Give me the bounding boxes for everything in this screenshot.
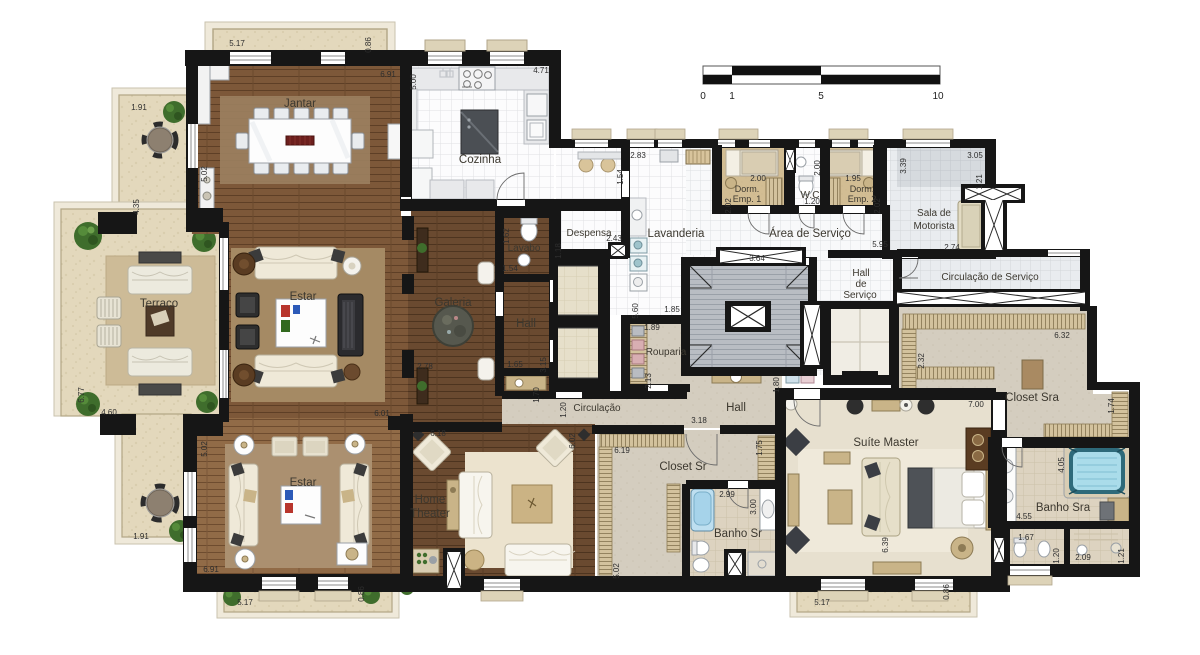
svg-text:6.32: 6.32 [1054, 331, 1070, 340]
svg-text:Hall: Hall [726, 402, 746, 414]
svg-text:5.60: 5.60 [631, 303, 640, 319]
svg-text:2.13: 2.13 [644, 373, 653, 389]
svg-text:6.19: 6.19 [614, 446, 630, 455]
svg-text:Home: Home [415, 494, 446, 506]
svg-text:3.05: 3.05 [967, 151, 983, 160]
svg-text:5.02: 5.02 [200, 441, 209, 457]
svg-text:Rouparia: Rouparia [646, 347, 687, 358]
svg-text:Suíte Master: Suíte Master [853, 437, 918, 449]
svg-text:Closet Sra: Closet Sra [1005, 392, 1059, 404]
svg-text:Motorista: Motorista [913, 221, 955, 232]
svg-text:2.43: 2.43 [606, 234, 622, 243]
svg-text:Emp. 1: Emp. 1 [733, 194, 762, 204]
svg-text:0: 0 [700, 91, 706, 102]
svg-text:1.95: 1.95 [845, 174, 861, 183]
svg-text:1.75: 1.75 [755, 440, 764, 456]
svg-text:1.20: 1.20 [559, 402, 568, 418]
svg-text:6.18: 6.18 [430, 429, 446, 438]
svg-text:Banho Sr: Banho Sr [714, 528, 762, 540]
svg-text:Theater: Theater [410, 508, 450, 520]
svg-text:Jantar: Jantar [284, 98, 316, 110]
svg-text:Estar: Estar [290, 477, 317, 489]
svg-text:2.00: 2.00 [750, 174, 766, 183]
svg-text:2.00: 2.00 [813, 160, 822, 176]
svg-text:5.17: 5.17 [237, 598, 253, 607]
svg-text:2.74: 2.74 [944, 243, 960, 252]
svg-text:1.54: 1.54 [502, 264, 518, 273]
svg-text:5.95: 5.95 [872, 240, 888, 249]
svg-text:1.20: 1.20 [804, 197, 820, 206]
svg-text:Banho Sra: Banho Sra [1036, 502, 1091, 514]
svg-text:Closet Sr: Closet Sr [659, 461, 706, 473]
svg-text:2.83: 2.83 [630, 151, 646, 160]
svg-text:1.91: 1.91 [133, 532, 149, 541]
svg-text:4.55: 4.55 [1016, 512, 1032, 521]
svg-text:1.67: 1.67 [1018, 533, 1034, 542]
svg-text:2.02: 2.02 [873, 198, 882, 214]
svg-text:Serviço: Serviço [843, 290, 877, 301]
svg-text:10: 10 [932, 91, 944, 102]
svg-text:1.21: 1.21 [975, 174, 984, 190]
svg-text:6.02: 6.02 [568, 433, 577, 449]
svg-text:5.00: 5.00 [409, 74, 418, 90]
svg-text:1.70: 1.70 [532, 387, 541, 403]
svg-text:0.86: 0.86 [364, 37, 373, 53]
svg-text:5.02: 5.02 [200, 166, 209, 182]
svg-text:Circulação de Serviço: Circulação de Serviço [941, 272, 1039, 283]
svg-text:6.77: 6.77 [77, 387, 86, 403]
svg-text:1.65: 1.65 [507, 360, 523, 369]
svg-text:2.99: 2.99 [719, 490, 735, 499]
svg-text:Sala de: Sala de [917, 208, 951, 219]
svg-text:1.80: 1.80 [772, 377, 781, 393]
svg-text:0.86: 0.86 [942, 584, 951, 600]
svg-text:3.15: 3.15 [539, 357, 548, 373]
svg-text:1.74: 1.74 [1107, 398, 1116, 414]
svg-text:1.18: 1.18 [554, 243, 563, 259]
svg-text:1.20: 1.20 [1052, 548, 1061, 564]
svg-text:5.17: 5.17 [229, 39, 245, 48]
svg-text:7.00: 7.00 [968, 400, 984, 409]
svg-text:Dorm.: Dorm. [735, 184, 760, 194]
svg-text:2.32: 2.32 [917, 353, 926, 369]
svg-text:6.91: 6.91 [203, 565, 219, 574]
svg-text:5.02: 5.02 [612, 563, 621, 579]
svg-text:1.85: 1.85 [664, 305, 680, 314]
svg-text:Circulação: Circulação [573, 403, 621, 414]
svg-text:2.78: 2.78 [417, 362, 433, 371]
svg-text:Hall: Hall [852, 268, 869, 279]
svg-text:1.89: 1.89 [644, 323, 660, 332]
svg-text:3.18: 3.18 [691, 416, 707, 425]
svg-text:Área de Serviço: Área de Serviço [769, 227, 851, 240]
svg-text:1.21: 1.21 [1117, 548, 1126, 564]
svg-text:4.60: 4.60 [101, 408, 117, 417]
svg-text:5.17: 5.17 [814, 598, 830, 607]
svg-text:3.39: 3.39 [899, 158, 908, 174]
svg-text:4.35: 4.35 [132, 199, 141, 215]
svg-text:6.01: 6.01 [374, 409, 390, 418]
svg-text:Lavanderia: Lavanderia [648, 228, 706, 240]
svg-text:Lavabo: Lavabo [508, 243, 541, 254]
svg-text:Estar: Estar [290, 291, 317, 303]
svg-text:5: 5 [818, 91, 824, 102]
svg-text:4.71: 4.71 [533, 66, 549, 75]
svg-text:de: de [855, 279, 867, 290]
svg-text:1.91: 1.91 [131, 103, 147, 112]
svg-text:1.62: 1.62 [502, 228, 511, 244]
svg-text:Terraço: Terraço [140, 298, 178, 310]
svg-text:2.09: 2.09 [1075, 553, 1091, 562]
svg-text:Despensa: Despensa [566, 228, 611, 239]
svg-text:Cozinha: Cozinha [459, 154, 502, 166]
svg-text:6.39: 6.39 [881, 537, 890, 553]
svg-text:4.05: 4.05 [1057, 457, 1066, 473]
svg-text:2.02: 2.02 [724, 198, 733, 214]
svg-text:Hall: Hall [516, 318, 536, 330]
svg-text:1: 1 [729, 91, 735, 102]
svg-text:Dorm.: Dorm. [850, 184, 875, 194]
svg-text:6.91: 6.91 [380, 70, 396, 79]
svg-text:0.86: 0.86 [357, 586, 366, 602]
svg-text:3.00: 3.00 [749, 499, 758, 515]
svg-text:1.54: 1.54 [616, 169, 625, 185]
svg-text:3.64: 3.64 [749, 254, 765, 263]
svg-text:Galeria: Galeria [434, 297, 472, 309]
svg-text:Emp. 2: Emp. 2 [848, 194, 877, 204]
